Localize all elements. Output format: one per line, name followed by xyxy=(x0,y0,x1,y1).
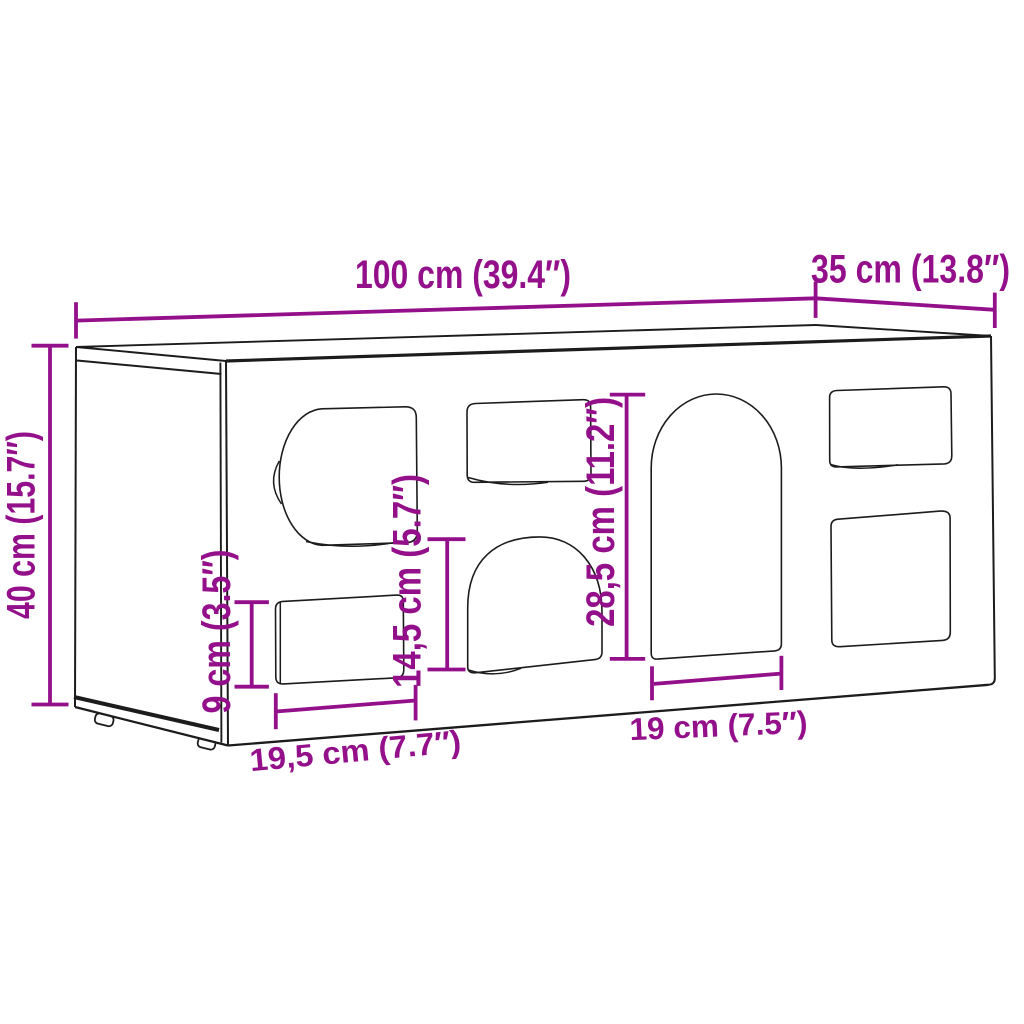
svg-text:9 cm (3.5″): 9 cm (3.5″) xyxy=(195,550,239,714)
svg-text:40 cm (15.7″): 40 cm (15.7″) xyxy=(0,431,44,619)
svg-text:28,5 cm (11.2″): 28,5 cm (11.2″) xyxy=(579,397,623,627)
svg-text:14,5 cm (5.7″): 14,5 cm (5.7″) xyxy=(386,474,430,688)
svg-text:100 cm (39.4″): 100 cm (39.4″) xyxy=(355,253,571,297)
svg-text:19 cm (7.5″): 19 cm (7.5″) xyxy=(629,704,808,747)
svg-text:35 cm (13.8″): 35 cm (13.8″) xyxy=(811,247,1010,291)
